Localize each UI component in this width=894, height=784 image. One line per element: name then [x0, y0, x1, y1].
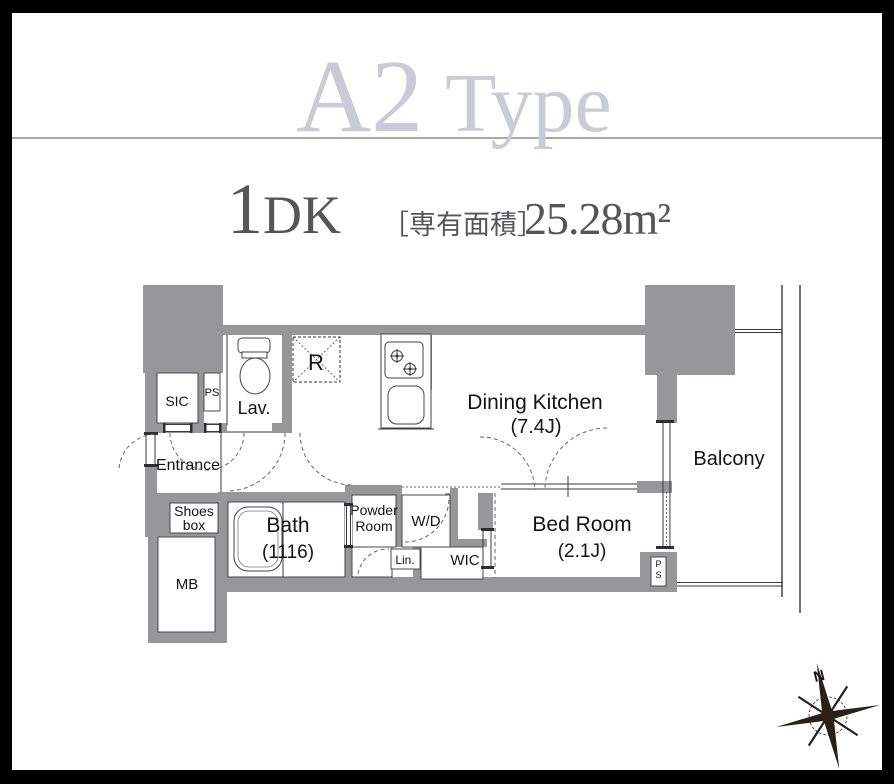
room-label-ps-upper: PS: [205, 387, 220, 399]
room-label-entrance: Entrance: [156, 457, 220, 474]
room-label-lin: Lin.: [395, 553, 414, 567]
room-label-bath-size: (1116): [262, 542, 314, 563]
room-label-wic: WIC: [450, 552, 479, 569]
room-label-lav: Lav.: [238, 398, 271, 418]
type-suffix: Type: [445, 57, 612, 150]
page-title: A2Type: [296, 45, 612, 149]
room-label-bath: Bath: [266, 514, 309, 537]
stove-burners-icon: [385, 342, 423, 378]
kitchen-counter: [381, 334, 431, 428]
room-label-bedroom: Bed Room: [532, 513, 631, 536]
frame-border-top: [0, 0, 894, 13]
type-name: A2: [296, 39, 423, 154]
room-label-shoes-2: box: [183, 517, 206, 533]
floorplan-page: A2Type 1DK ［専有面積］ 25.28m²: [0, 0, 894, 784]
room-label-dining-kitchen: Dining Kitchen: [467, 391, 602, 414]
room-label-sic: SIC: [165, 393, 188, 409]
kitchen-sink-icon: [388, 386, 424, 424]
toilet-icon: [238, 338, 270, 394]
compass-rose-icon: N: [765, 652, 891, 780]
room-label-powder-2: Room: [355, 518, 392, 534]
frame-border-right: [882, 0, 894, 784]
room-label-bedroom-size: (2.1J): [558, 541, 607, 562]
frame-border-bottom: [0, 770, 894, 784]
room-label-balcony: Balcony: [693, 448, 764, 470]
compass-n-label: N: [812, 667, 827, 686]
room-label-fridge: R: [308, 350, 324, 375]
room-label-wd: W/D: [411, 513, 440, 530]
room-label-ps-lower-p: P: [655, 559, 661, 569]
room-label-ps-lower-s: S: [655, 570, 661, 580]
room-label-powder-1: Powder: [350, 502, 398, 518]
room-label-mb: MB: [176, 576, 199, 593]
room-label-dining-kitchen-size: (7.4J): [510, 416, 561, 438]
frame-border-left: [0, 0, 12, 784]
walls: [143, 285, 735, 643]
